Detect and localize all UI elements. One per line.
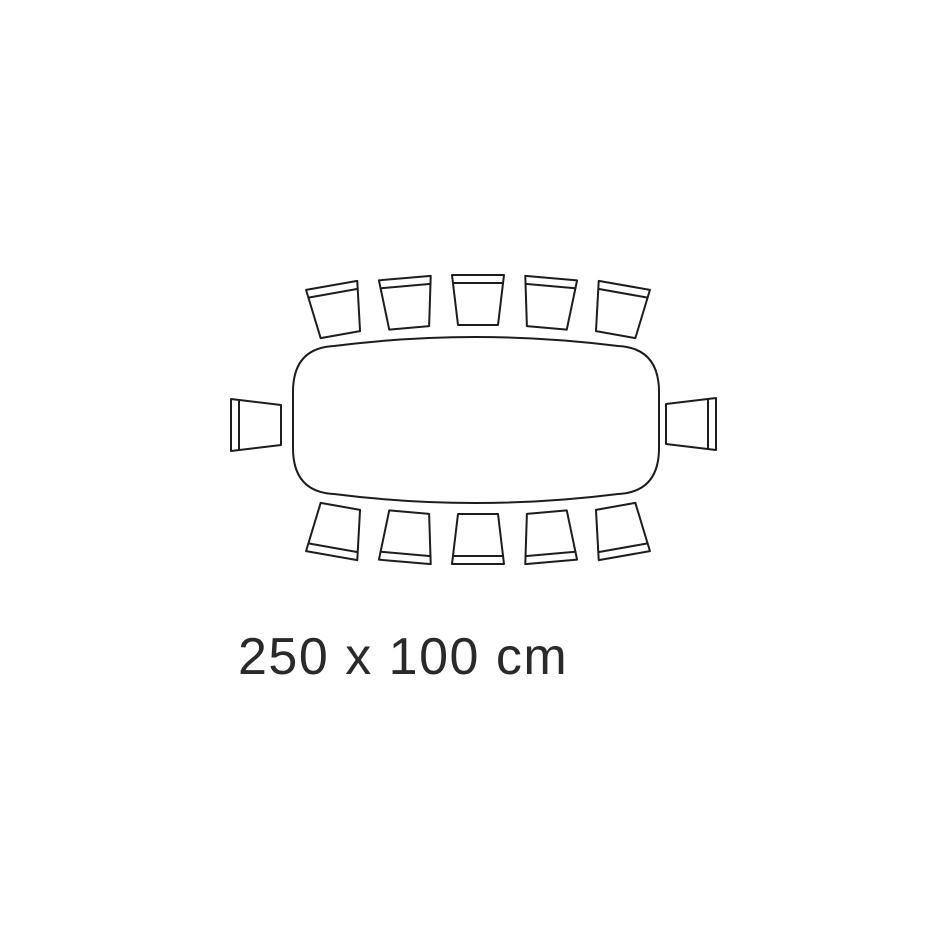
chair-top-2 [379,276,435,330]
chair-right-7 [666,398,716,450]
chair-left-6 [231,399,281,451]
dimensions-label: 250 x 100 cm [238,631,568,683]
seating-diagram: 250 x 100 cm [0,0,950,950]
chair-bottom-11 [521,510,577,564]
diagram-canvas [0,0,950,950]
chair-bottom-10 [452,514,504,564]
chair-top-1 [306,281,366,339]
chair-bottom-12 [590,502,650,560]
chair-bottom-8 [306,502,366,560]
chair-top-4 [521,276,577,330]
table-top [293,337,659,503]
chair-top-5 [590,281,650,339]
chair-bottom-9 [379,510,435,564]
chair-top-3 [452,275,504,325]
